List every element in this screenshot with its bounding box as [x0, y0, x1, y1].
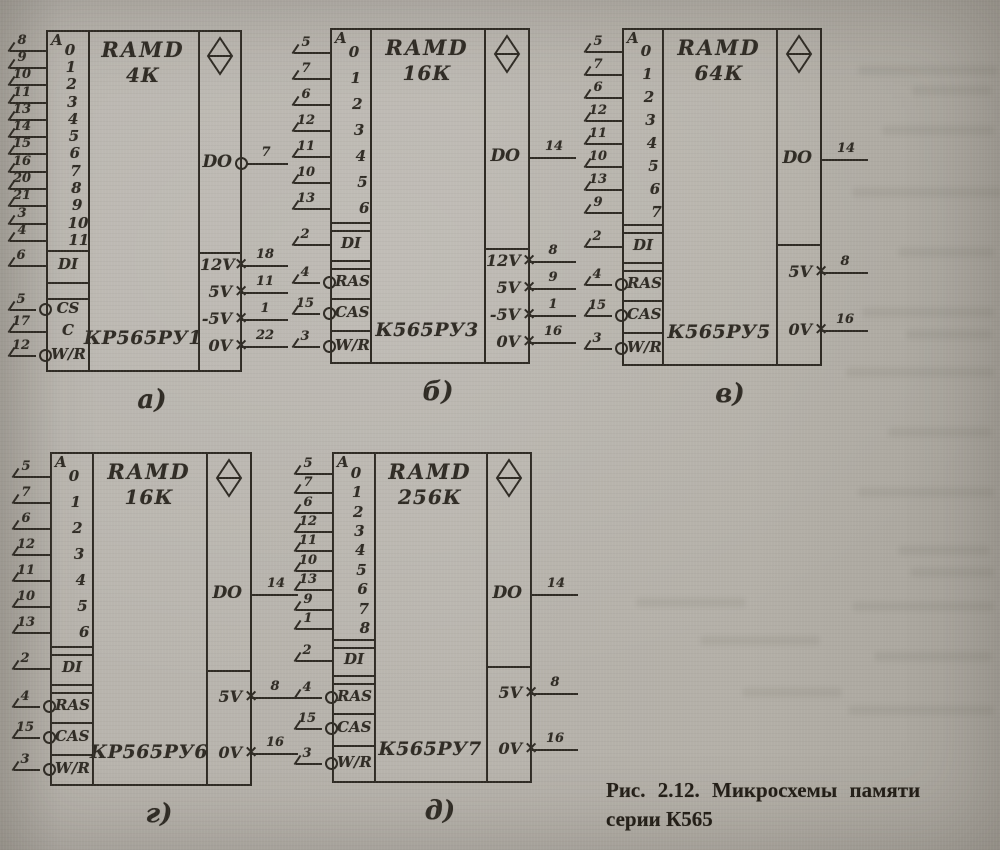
- chip-v-section-line-2: [622, 262, 664, 264]
- chip-g-control-pin-wire: [14, 737, 40, 739]
- chip-a-power-wire: [242, 292, 288, 294]
- chip-v-address-pin-wire: [586, 212, 624, 214]
- chip-d-address-pin-number: 13: [294, 573, 322, 587]
- chip-v-address-pin-number: 10: [584, 150, 612, 164]
- chip-a-title-capacity: 4К: [88, 64, 198, 86]
- chip-b-address-digit-2: 2: [345, 96, 369, 113]
- chip-b-power-wire: [530, 288, 576, 290]
- chip-a-address-pin-wire: [10, 240, 48, 242]
- chip-d-address-digit-0: 0: [344, 465, 368, 482]
- chip-a-address-digit-3: 3: [60, 94, 84, 111]
- chip-a-power-pin-number: 1: [250, 302, 280, 316]
- chip-d-control-pin-number: 4: [294, 681, 320, 695]
- chip-d-title-capacity: 256К: [374, 486, 486, 508]
- bleedthrough-mark: [898, 546, 990, 555]
- chip-d-address-pin-wire: [296, 628, 334, 630]
- chip-b-address-digit-1: 1: [344, 70, 368, 87]
- chip-g-control-pin-wire: [14, 706, 40, 708]
- chip-d-do-pin-number: 14: [542, 577, 570, 591]
- bleedthrough-mark: [888, 428, 992, 437]
- chip-a-address-pin-number: 21: [8, 189, 36, 203]
- chip-v-address-digit-7: 7: [645, 204, 669, 221]
- bleedthrough-mark: [910, 568, 994, 577]
- chip-a-power-pin-number: 11: [250, 275, 280, 289]
- bleedthrough-mark: [848, 706, 994, 715]
- chip-g-address-digit-6: 6: [72, 624, 96, 641]
- chip-g-address-pin-number: 7: [12, 486, 40, 500]
- chip-d-power-label-1: 0V: [488, 740, 522, 758]
- chip-g-address-pin-number: 12: [12, 538, 40, 552]
- chip-a-control-pin-number: 6: [8, 249, 34, 263]
- chip-a-title-ram: RAMD: [88, 38, 198, 61]
- chip-v-address-pin-wire: [586, 74, 624, 76]
- chip-b-do-pin-number: 14: [540, 140, 568, 154]
- figure-caption: Рис. 2.12. Микросхемы памяти серии К565: [606, 776, 998, 834]
- chip-g-address-pin-wire: [14, 606, 52, 608]
- chip-g-address-digit-1: 1: [64, 494, 88, 511]
- chip-d-power-pin-number: 16: [540, 732, 570, 746]
- chip-v-address-pin-number: 13: [584, 173, 612, 187]
- chip-g-control-label-2: CAS: [55, 728, 89, 745]
- chip-v-active-low-bubble: [615, 342, 628, 355]
- chip-d-address-pin-number: 9: [294, 593, 322, 607]
- chip-d-address-pin-number: 6: [294, 496, 322, 510]
- chip-v-power-wire: [822, 330, 868, 332]
- chip-v-control-pin-wire: [586, 284, 612, 286]
- chip-v-address-pin-number: 11: [584, 127, 612, 141]
- chip-b-power-pin-number: 16: [538, 325, 568, 339]
- chip-a-control-label-3: W/R: [51, 346, 85, 363]
- chip-v-do-label: DO: [778, 149, 812, 168]
- bleedthrough-mark: [858, 66, 998, 75]
- chip-d-subfigure-label: д): [410, 797, 470, 826]
- chip-v-active-low-bubble: [615, 278, 628, 291]
- chip-d-address-digit-6: 6: [351, 581, 375, 598]
- chip-d-right-column-divider: [486, 452, 488, 783]
- chip-a-power-wire: [242, 265, 288, 267]
- chip-g-control-pin-number: 3: [12, 753, 38, 767]
- chip-g-control-pin-number: 4: [12, 690, 38, 704]
- chip-v-control-pin-number: 2: [584, 230, 610, 244]
- chip-g-part-number: КР565РУ6: [84, 742, 214, 763]
- chip-a-address-digit-9: 9: [65, 197, 89, 214]
- chip-d-active-low-bubble: [325, 722, 338, 735]
- chip-v-address-pin-wire: [586, 97, 624, 99]
- chip-a-address-pin-number: 14: [8, 120, 36, 134]
- chip-g-control-label-1: RAS: [55, 697, 89, 714]
- chip-a-power-label-3: 0V: [200, 337, 232, 355]
- chip-a-do-wire: [247, 163, 288, 165]
- chip-b-address-pin-number: 13: [292, 192, 320, 206]
- chip-g-address-pin-wire: [14, 632, 52, 634]
- chip-a-address-pin-number: 15: [8, 137, 36, 151]
- chip-d-section-line-4: [332, 713, 376, 715]
- chip-b-address-digit-5: 5: [351, 174, 375, 191]
- chip-v-do-pin-number: 14: [832, 142, 860, 156]
- chip-b-active-low-bubble: [323, 340, 336, 353]
- chip-v-address-pin-number: 5: [584, 35, 612, 49]
- chip-b-control-pin-wire: [294, 313, 320, 315]
- chip-v-control-pin-number: 3: [584, 332, 610, 346]
- chip-a-power-label-0: 12V: [200, 256, 232, 274]
- chip-v-address-digit-6: 6: [643, 181, 667, 198]
- scanned-book-page: RAMD4ККР565РУ1A0819210311413514615716820…: [0, 0, 1000, 850]
- chip-g-control-label-3: W/R: [55, 760, 89, 777]
- chip-b-section-line-1: [330, 230, 372, 232]
- bleedthrough-mark: [882, 126, 994, 135]
- chip-d-power-wire: [532, 749, 578, 751]
- chip-g-section-line-1: [50, 654, 94, 656]
- chip-a-control-pin-wire: [10, 355, 36, 357]
- figure-2-12-diagrams: RAMD4ККР565РУ1A0819210311413514615716820…: [0, 0, 1000, 850]
- chip-d-address-pin-wire: [296, 589, 334, 591]
- caption-line2: серии К565: [606, 805, 998, 834]
- chip-g-active-low-bubble: [43, 700, 56, 713]
- chip-d-control-pin-wire: [296, 697, 322, 699]
- chip-v-address-digit-0: 0: [634, 43, 658, 60]
- chip-g-address-pin-wire: [14, 580, 52, 582]
- chip-v-address-pin-wire: [586, 143, 624, 145]
- chip-d-section-line-1: [332, 647, 376, 649]
- chip-a-power-label-1: 5V: [200, 283, 232, 301]
- caption-line1: Рис. 2.12. Микросхемы памяти: [606, 776, 998, 805]
- chip-b-power-mark-icon: ×: [522, 277, 536, 297]
- chip-v-subfigure-label: в): [700, 380, 760, 409]
- chip-g-control-pin-wire: [14, 668, 51, 670]
- chip-v-section-line-1: [622, 232, 664, 234]
- chip-g-section-line-3: [50, 692, 94, 694]
- chip-a-part-number: КР565РУ1: [80, 328, 206, 349]
- chip-b-active-low-bubble: [323, 276, 336, 289]
- chip-b-power-wire: [530, 342, 576, 344]
- chip-g-address-digit-5: 5: [71, 598, 95, 615]
- chip-v-address-digit-1: 1: [636, 66, 660, 83]
- chip-b-title-capacity: 16К: [370, 62, 484, 84]
- chip-g-section-line-0: [50, 646, 94, 648]
- chip-d-address-pin-wire: [296, 473, 334, 475]
- chip-v-section-line-4: [622, 300, 664, 302]
- chip-g-control-label-0: DI: [55, 659, 89, 676]
- chip-g-control-pin-number: 15: [12, 721, 38, 735]
- chip-d-active-low-bubble: [325, 757, 338, 770]
- chip-b-active-low-bubble: [323, 307, 336, 320]
- chip-v-power-label-0: 5V: [778, 263, 812, 281]
- chip-a-address-digit-0: 0: [58, 42, 82, 59]
- chip-d-address-digit-5: 5: [350, 562, 374, 579]
- bleedthrough-mark: [912, 86, 992, 95]
- chip-b-address-digit-0: 0: [342, 44, 366, 61]
- chip-v-title-ram: RAMD: [662, 36, 776, 59]
- chip-a-power-mark-icon: ×: [234, 335, 248, 355]
- bleedthrough-mark: [874, 652, 992, 661]
- chip-a-power-mark-icon: ×: [234, 308, 248, 328]
- chip-d-output-diamond-icon: [495, 458, 523, 498]
- chip-d-power-wire: [532, 693, 578, 695]
- chip-d-do-wire: [532, 594, 578, 596]
- chip-d-section-line-3: [332, 683, 376, 685]
- chip-b-address-pin-wire: [294, 156, 332, 158]
- chip-d-control-label-0: DI: [337, 651, 371, 668]
- chip-d-power-divider: [486, 666, 532, 668]
- chip-d-address-digit-1: 1: [345, 484, 369, 501]
- chip-b-control-pin-wire: [294, 346, 320, 348]
- chip-v-address-pin-wire: [586, 120, 624, 122]
- chip-v-address-pin-number: 12: [584, 104, 612, 118]
- chip-b-control-pin-number: 4: [292, 266, 318, 280]
- chip-a-power-pin-number: 22: [250, 329, 280, 343]
- chip-d-control-pin-number: 3: [294, 747, 320, 761]
- chip-g-address-digit-3: 3: [67, 546, 91, 563]
- bleedthrough-mark: [858, 488, 994, 497]
- chip-g-control-pin-wire: [14, 769, 40, 771]
- chip-v-address-pin-number: 7: [584, 58, 612, 72]
- chip-d-address-digit-8: 8: [353, 620, 377, 637]
- chip-d-control-label-3: W/R: [337, 754, 371, 771]
- bleedthrough-mark: [742, 688, 842, 697]
- chip-a-power-pin-number: 18: [250, 248, 280, 262]
- chip-d-section-line-2: [332, 675, 376, 677]
- chip-g-address-pin-number: 5: [12, 460, 40, 474]
- chip-a-control-label-1: CS: [51, 300, 85, 317]
- chip-g-power-pin-number: 8: [260, 680, 290, 694]
- chip-b-part-number: К565РУ3: [362, 320, 492, 341]
- chip-g-active-low-bubble: [43, 763, 56, 776]
- bleedthrough-mark: [852, 602, 994, 611]
- chip-v-address-digit-2: 2: [637, 89, 661, 106]
- chip-g-power-wire: [252, 697, 298, 699]
- chip-a-address-digit-8: 8: [64, 180, 88, 197]
- chip-a-section-line-1: [46, 282, 90, 284]
- chip-b-output-diamond-icon: [493, 34, 521, 74]
- chip-d-control-label-2: CAS: [337, 719, 371, 736]
- chip-d-address-pin-number: 5: [294, 457, 322, 471]
- chip-b-power-wire: [530, 315, 576, 317]
- chip-g-power-mark-icon: ×: [244, 686, 258, 706]
- chip-v-right-column-divider: [776, 28, 778, 366]
- chip-b-control-pin-number: 3: [292, 330, 318, 344]
- chip-a-control-pin-wire: [10, 309, 36, 311]
- chip-v-power-divider: [776, 244, 822, 246]
- bleedthrough-mark: [700, 636, 820, 645]
- chip-b-address-digit-4: 4: [349, 148, 373, 165]
- chip-a-address-digit-2: 2: [60, 76, 84, 93]
- chip-g-title-ram: RAMD: [92, 460, 206, 483]
- chip-b-address-pin-wire: [294, 78, 332, 80]
- chip-b-address-pin-number: 7: [292, 62, 320, 76]
- chip-b-do-label: DO: [486, 147, 520, 166]
- chip-g-output-diamond-icon: [215, 458, 243, 498]
- chip-d-power-mark-icon: ×: [524, 682, 538, 702]
- chip-d-power-mark-icon: ×: [524, 738, 538, 758]
- chip-v-address-pin-wire: [586, 166, 624, 168]
- chip-a-power-wire: [242, 319, 288, 321]
- chip-v-part-number: К565РУ5: [654, 322, 784, 343]
- chip-g-title-capacity: 16К: [92, 486, 206, 508]
- chip-g-do-label: DO: [208, 584, 242, 603]
- chip-a-control-pin-number: 5: [8, 293, 34, 307]
- chip-a-output-diamond-icon: [206, 36, 234, 76]
- bleedthrough-mark: [862, 308, 994, 317]
- chip-v-power-pin-number: 8: [830, 255, 860, 269]
- chip-a-control-pin-wire: [10, 331, 47, 333]
- chip-a-address-digit-11: 11: [67, 232, 91, 249]
- chip-g-power-divider: [206, 670, 252, 672]
- chip-a-address-pin-number: 8: [8, 34, 36, 48]
- chip-b-address-pin-wire: [294, 130, 332, 132]
- chip-d-address-pin-wire: [296, 492, 334, 494]
- chip-g-right-column-divider: [206, 452, 208, 786]
- chip-a-address-digit-5: 5: [62, 128, 86, 145]
- chip-a-address-pin-number: 11: [8, 86, 36, 100]
- chip-b-address-pin-wire: [294, 104, 332, 106]
- chip-d-power-label-0: 5V: [488, 684, 522, 702]
- chip-a-address-digit-6: 6: [63, 145, 87, 162]
- chip-a-control-label-0: DI: [51, 256, 85, 273]
- bleedthrough-mark: [846, 368, 994, 377]
- chip-b-power-mark-icon: ×: [522, 304, 536, 324]
- chip-v-power-pin-number: 16: [830, 313, 860, 327]
- chip-a-power-label-2: -5V: [200, 310, 232, 328]
- chip-a-power-wire: [242, 346, 288, 348]
- chip-d-control-label-1: RAS: [337, 688, 371, 705]
- chip-g-address-digit-2: 2: [65, 520, 89, 537]
- chip-a-control-pin-wire: [10, 265, 47, 267]
- chip-d-address-digit-3: 3: [347, 523, 371, 540]
- chip-v-address-pin-number: 6: [584, 81, 612, 95]
- chip-d-address-pin-wire: [296, 550, 334, 552]
- chip-b-address-digit-6: 6: [352, 200, 376, 217]
- chip-v-section-line-3: [622, 270, 664, 272]
- chip-g-section-line-2: [50, 684, 94, 686]
- chip-a-power-mark-icon: ×: [234, 254, 248, 274]
- chip-g-do-pin-number: 14: [262, 577, 290, 591]
- chip-a-do-label: DO: [200, 153, 232, 172]
- chip-v-title-capacity: 64К: [662, 62, 776, 84]
- chip-g-address-pin-number: 10: [12, 590, 40, 604]
- chip-a-section-line-0: [46, 250, 90, 252]
- chip-a-subfigure-label: а): [122, 386, 182, 415]
- chip-v-active-low-bubble: [615, 309, 628, 322]
- chip-d-do-label: DO: [488, 584, 522, 603]
- chip-g-address-pin-number: 6: [12, 512, 40, 526]
- chip-b-address-pin-wire: [294, 52, 332, 54]
- chip-g-address-digit-4: 4: [69, 572, 93, 589]
- chip-v-address-digit-4: 4: [640, 135, 664, 152]
- chip-a-do-pin-number: 7: [252, 146, 280, 160]
- chip-d-address-pin-number: 11: [294, 534, 322, 548]
- chip-g-subfigure-label: г): [129, 800, 189, 829]
- chip-a-address-pin-number: 10: [8, 68, 36, 82]
- chip-b-power-mark-icon: ×: [522, 250, 536, 270]
- chip-v-address-digit-3: 3: [639, 112, 663, 129]
- chip-d-control-pin-wire: [296, 728, 322, 730]
- chip-d-active-low-bubble: [325, 691, 338, 704]
- chip-b-section-line-4: [330, 298, 372, 300]
- chip-v-do-wire: [822, 159, 868, 161]
- chip-d-address-pin-number: 1: [294, 612, 322, 626]
- chip-a-address-digit-4: 4: [61, 111, 85, 128]
- chip-a-address-pin-number: 3: [8, 207, 36, 221]
- chip-v-control-pin-wire: [586, 348, 612, 350]
- chip-v-control-label-0: DI: [627, 237, 659, 254]
- chip-d-control-pin-wire: [296, 660, 333, 662]
- chip-g-control-pin-number: 2: [12, 652, 38, 666]
- chip-a-address-pin-number: 20: [8, 172, 36, 186]
- chip-v-power-wire: [822, 272, 868, 274]
- chip-d-address-pin-number: 7: [294, 476, 322, 490]
- chip-d-address-digit-4: 4: [348, 542, 372, 559]
- bleedthrough-mark: [898, 248, 994, 257]
- bleedthrough-mark: [636, 598, 746, 607]
- chip-a-address-pin-number: 4: [8, 224, 36, 238]
- chip-b-address-digit-3: 3: [347, 122, 371, 139]
- chip-a-address-pin-number: 13: [8, 103, 36, 117]
- chip-d-address-digit-7: 7: [352, 601, 376, 618]
- chip-b-power-wire: [530, 261, 576, 263]
- chip-b-control-pin-number: 15: [292, 297, 318, 311]
- chip-v-control-pin-number: 15: [584, 299, 610, 313]
- chip-b-power-label-0: 12V: [486, 252, 520, 270]
- chip-d-section-line-0: [332, 639, 376, 641]
- chip-a-address-pin-number: 16: [8, 155, 36, 169]
- chip-g-address-pin-number: 11: [12, 564, 40, 578]
- chip-d-control-pin-number: 2: [294, 644, 320, 658]
- chip-b-address-pin-wire: [294, 208, 332, 210]
- chip-v-control-label-3: W/R: [627, 339, 659, 356]
- chip-b-address-pin-number: 10: [292, 166, 320, 180]
- chip-v-output-diamond-icon: [785, 34, 813, 74]
- chip-a-address-digit-10: 10: [66, 215, 90, 232]
- bleedthrough-mark: [852, 188, 1000, 197]
- chip-b-power-mark-icon: ×: [522, 331, 536, 351]
- chip-a-address-digit-1: 1: [59, 59, 83, 76]
- chip-v-control-pin-wire: [586, 246, 623, 248]
- chip-v-address-pin-wire: [586, 51, 624, 53]
- chip-g-address-digit-0: 0: [62, 468, 86, 485]
- chip-b-power-pin-number: 1: [538, 298, 568, 312]
- chip-g-power-wire: [252, 753, 298, 755]
- chip-g-active-low-bubble: [43, 731, 56, 744]
- chip-d-address-pin-number: 10: [294, 554, 322, 568]
- chip-g-power-label-0: 5V: [208, 688, 242, 706]
- chip-a-control-pin-number: 12: [8, 339, 34, 353]
- chip-b-power-pin-number: 8: [538, 244, 568, 258]
- chip-v-address-pin-number: 9: [584, 196, 612, 210]
- chip-b-section-line-2: [330, 260, 372, 262]
- chip-g-power-label-1: 0V: [208, 744, 242, 762]
- chip-b-control-label-3: W/R: [335, 337, 367, 354]
- chip-b-subfigure-label: б): [408, 378, 468, 407]
- chip-d-power-pin-number: 8: [540, 676, 570, 690]
- chip-v-control-pin-wire: [586, 315, 612, 317]
- chip-v-address-digit-5: 5: [642, 158, 666, 175]
- chip-b-control-label-1: RAS: [335, 273, 367, 290]
- chip-b-do-wire: [530, 157, 576, 159]
- chip-d-control-pin-wire: [296, 763, 322, 765]
- chip-b-power-label-1: 5V: [486, 279, 520, 297]
- chip-d-title-ram: RAMD: [374, 460, 486, 483]
- chip-b-power-label-2: -5V: [486, 306, 520, 324]
- chip-d-address-pin-number: 12: [294, 515, 322, 529]
- chip-b-address-pin-number: 11: [292, 140, 320, 154]
- chip-b-control-pin-wire: [294, 244, 331, 246]
- chip-a-power-mark-icon: ×: [234, 281, 248, 301]
- chip-b-control-pin-wire: [294, 282, 320, 284]
- chip-b-section-line-3: [330, 268, 372, 270]
- chip-b-address-pin-wire: [294, 182, 332, 184]
- chip-v-power-label-1: 0V: [778, 321, 812, 339]
- bleedthrough-mark: [906, 330, 992, 339]
